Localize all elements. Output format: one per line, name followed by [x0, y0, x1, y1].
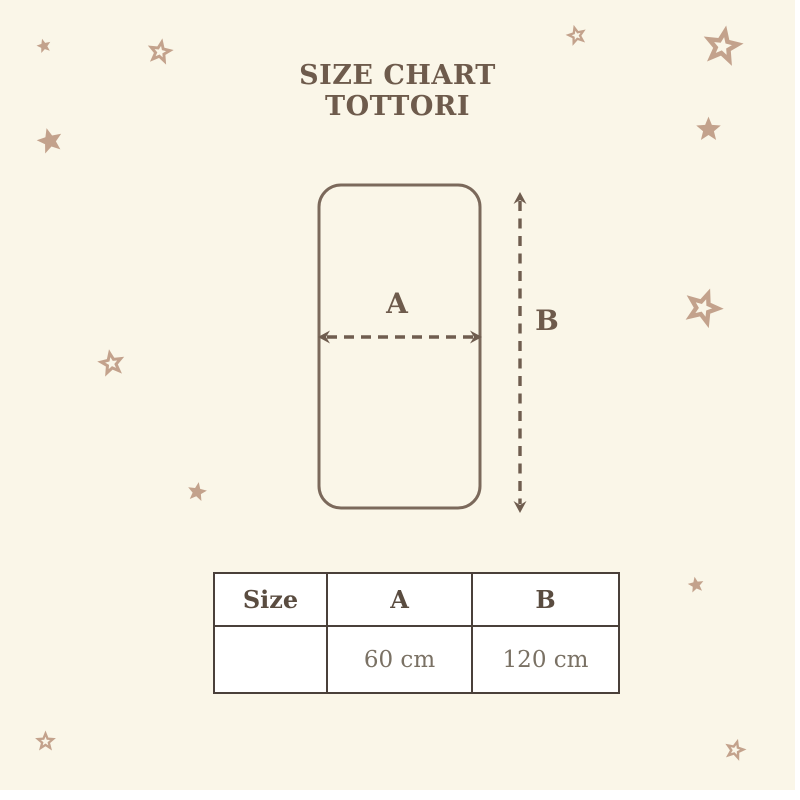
page-title-line1: SIZE CHART — [0, 60, 795, 91]
size-table-cell-b: 120 cm — [473, 627, 618, 692]
star-filled-icon — [686, 575, 706, 595]
size-table-cell-size — [215, 627, 328, 692]
width-arrow — [318, 331, 482, 344]
height-arrow — [514, 192, 527, 513]
star-outline-icon — [685, 290, 721, 326]
size-table-header-size: Size — [215, 574, 328, 627]
star-filled-icon — [185, 480, 209, 504]
size-table: Size A B 60 cm 120 cm — [213, 572, 620, 694]
mattress-outline — [319, 185, 480, 508]
height-label-b: B — [529, 306, 565, 336]
star-outline-icon — [36, 732, 55, 751]
width-label-a: A — [379, 289, 415, 319]
size-table-header-a: A — [328, 574, 473, 627]
size-table-header-b: B — [473, 574, 618, 627]
star-outline-icon — [567, 26, 586, 45]
size-chart-page: SIZE CHART TOTTORI A B Size A — [0, 0, 800, 800]
star-outline-icon — [725, 740, 745, 760]
star-filled-icon — [35, 37, 53, 55]
star-filled-icon — [34, 125, 66, 157]
page-title: SIZE CHART TOTTORI — [0, 60, 795, 122]
product-dimension-diagram — [300, 175, 570, 530]
cream-canvas: SIZE CHART TOTTORI A B Size A — [0, 0, 795, 790]
star-outline-icon — [99, 351, 124, 376]
page-title-line2: TOTTORI — [0, 91, 795, 122]
size-table-cell-a: 60 cm — [328, 627, 473, 692]
